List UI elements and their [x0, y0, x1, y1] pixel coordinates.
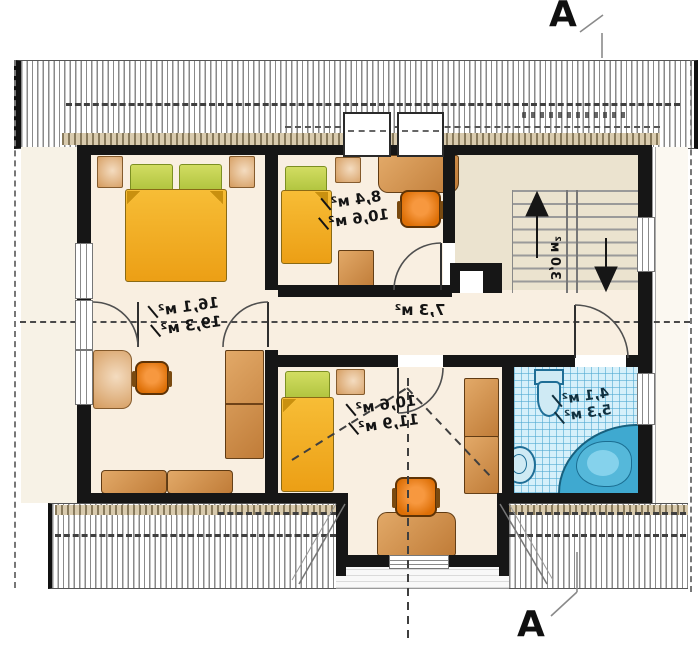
roof-dash-bottom-1b [509, 512, 686, 515]
label-corridor: 7,3 м² [370, 298, 470, 322]
roof-dash-bottom-1a [218, 512, 336, 515]
sideboard-cushion [167, 470, 233, 494]
blanket-fold [283, 399, 296, 412]
roof-dash-top-2 [285, 126, 660, 128]
wardrobe [464, 378, 499, 438]
section-mark-top-diagonal [580, 15, 603, 32]
section-letter-top: A [549, 0, 577, 35]
wardrobe [464, 436, 499, 494]
blanket-fold [210, 191, 223, 204]
skylight-sash-line [348, 130, 386, 132]
window-right-1 [637, 217, 655, 272]
section-letter-bottom: A [517, 604, 545, 645]
wall-bathroom-west [502, 367, 514, 493]
roof-dash-top-1 [66, 103, 680, 106]
wardrobe-divider [226, 403, 263, 405]
dormer-wall-south-a [336, 555, 390, 567]
roof-dash-bottom-2a [55, 534, 336, 537]
eave-line-left [14, 60, 16, 588]
wall-top-bedroom-east [443, 155, 455, 243]
eave-band-right [652, 147, 688, 503]
eave-line-right [690, 60, 692, 592]
skylight-window-1 [343, 112, 391, 157]
dormer-ledge [336, 567, 509, 589]
skylight-window-2 [397, 112, 444, 157]
wall-bottom-right-seg [500, 493, 652, 503]
wall-right [638, 145, 652, 503]
terrace-door-left [75, 300, 93, 350]
sideboard-cushion [101, 470, 167, 494]
area-usable: 7,3 м² [395, 301, 446, 320]
nightstand [97, 156, 123, 188]
desk [377, 512, 456, 556]
wall-int-vert-lower [265, 350, 278, 493]
roof-hatch-bottom-left [48, 503, 340, 589]
section-mark-bottom-diagonal [551, 592, 577, 616]
wall-corridor-south-b [443, 355, 575, 367]
window-left-2 [75, 350, 93, 405]
illegible-dimension-marks [522, 112, 628, 118]
dormer-nub-left [336, 567, 346, 576]
desk-chair [135, 361, 169, 395]
wall-corridor-south-c [626, 355, 640, 367]
wall-corridor-south-a [265, 355, 398, 367]
nightstand [229, 156, 255, 188]
chimney-opening [460, 271, 483, 293]
dresser [338, 250, 374, 289]
dormer-window [389, 555, 449, 569]
wall-bottom-left-seg [77, 493, 345, 503]
eave-band-left [21, 147, 77, 503]
wall-int-vert-upper [265, 155, 278, 290]
skylight-sash-line [402, 130, 439, 132]
roof-hatch-bottom-right [509, 503, 688, 589]
area-usable: 3,0 м² [546, 236, 562, 280]
label-staircase: 3,0 м² [516, 240, 592, 276]
blanket-fold [127, 191, 140, 204]
window-right-2 [637, 373, 655, 425]
dormer-nub-right [499, 567, 509, 576]
floor-plan: 16,1 м² 19,3 м² 8,4 м² 10,6 м² 7,3 м² 3,… [0, 0, 700, 649]
wardrobe [225, 350, 264, 459]
nightstand [335, 157, 361, 183]
wall-corridor-north [278, 285, 452, 297]
office-chair [395, 477, 437, 517]
window-left-1 [75, 243, 93, 299]
desk [93, 350, 132, 409]
dormer-wall-south-b [446, 555, 509, 567]
bathtub-basin [587, 450, 619, 476]
roof-dash-bottom-2b [509, 534, 686, 537]
